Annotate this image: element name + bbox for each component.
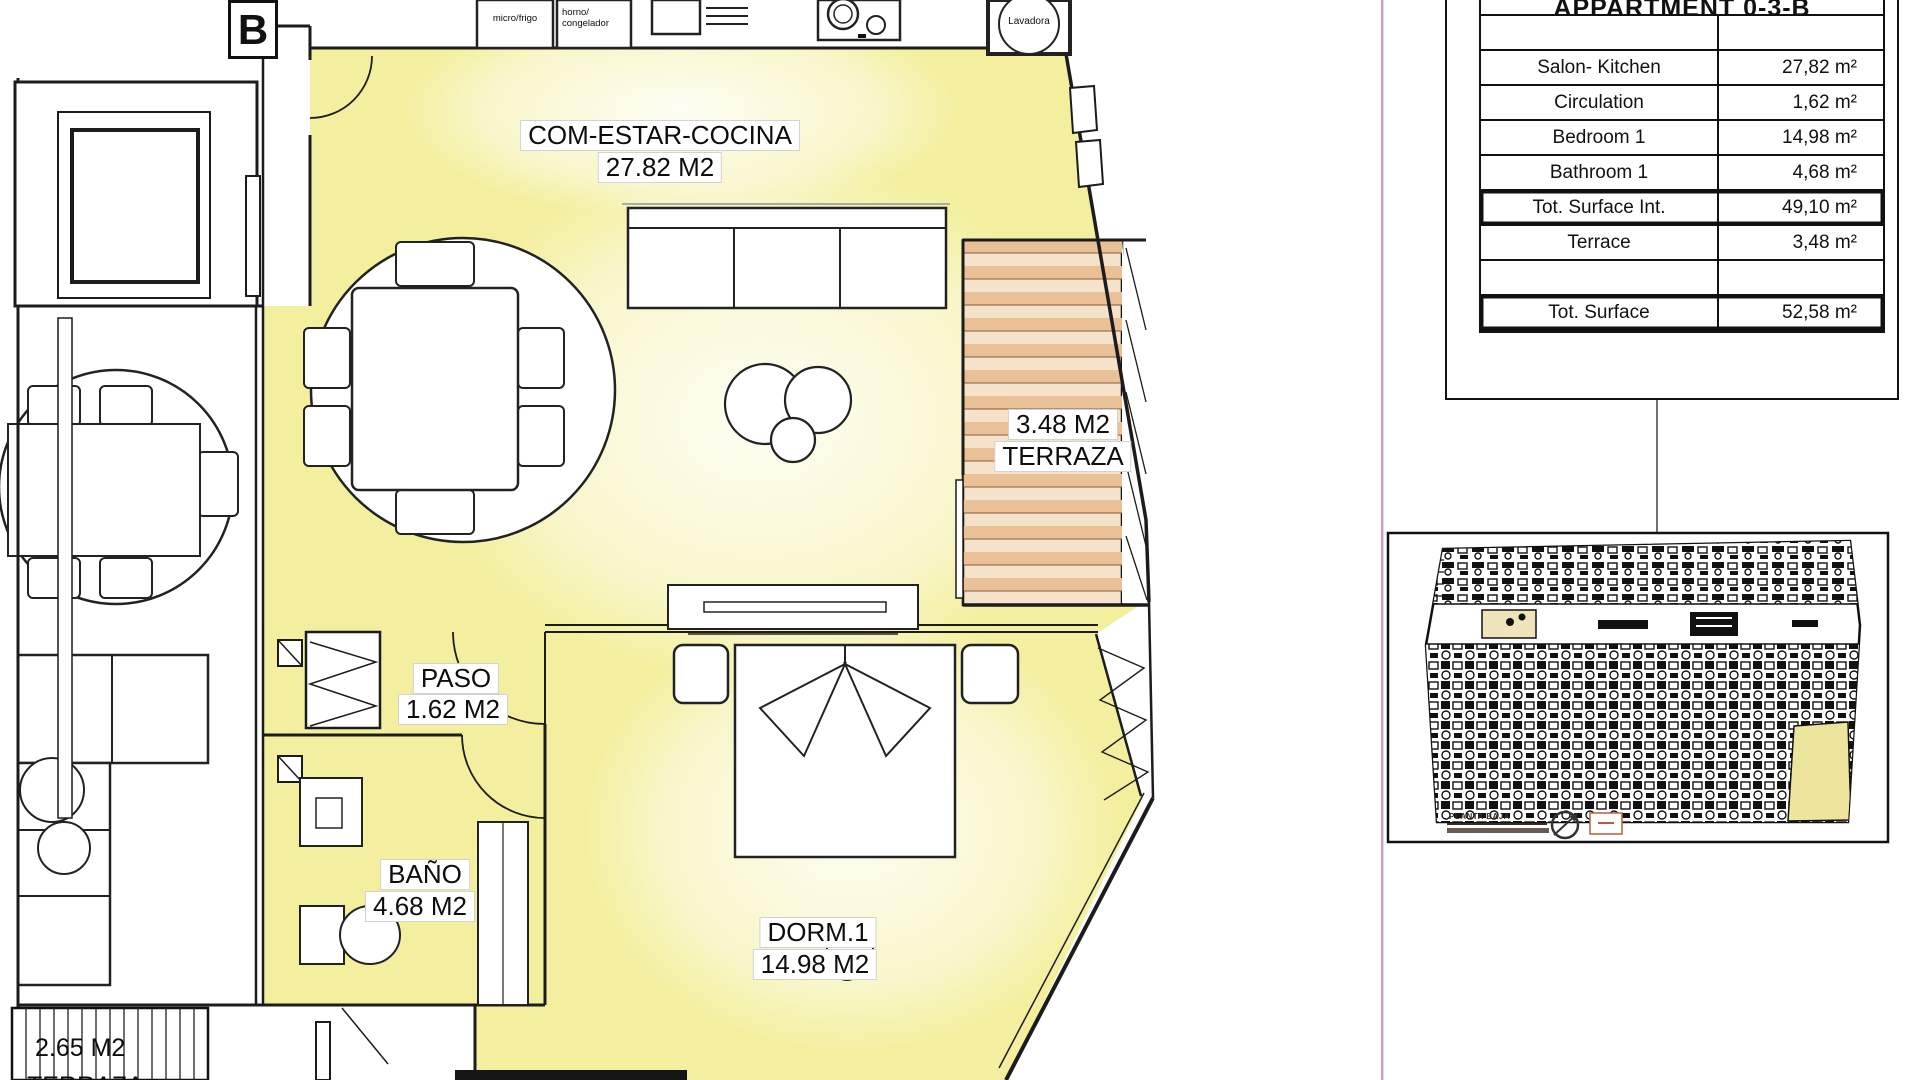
appliance-label-micro-fridge: micro/frigo	[493, 14, 537, 24]
toilet	[300, 906, 344, 964]
table-row-total: Tot. Surface 52,58 m²	[1481, 296, 1883, 331]
table-row-spacer	[1481, 16, 1883, 51]
table-row: Salon- Kitchen 27,82 m²	[1481, 51, 1883, 86]
table-row-empty	[1481, 261, 1883, 296]
floorplan-sheet: B micro/frigo horno/ congelador Lavadora…	[0, 0, 1920, 1080]
nightstand	[962, 645, 1018, 703]
surface-table-box: APPARTMENT 0-3-B Salon- Kitchen 27,82 m²…	[1445, 0, 1899, 400]
room-label-terrace-name: TERRAZA	[995, 442, 1130, 471]
key-plan-caption: PLANTA BAJA	[1449, 812, 1510, 821]
table-row: Bathroom 1 4,68 m²	[1481, 156, 1883, 191]
room-label-living-name: COM-ESTAR-COCINA	[521, 121, 799, 150]
table-row: Bedroom 1 14,98 m²	[1481, 121, 1883, 156]
nightstand	[674, 645, 728, 703]
pink-guide-line	[1381, 0, 1383, 1080]
room-label-dorm-area: 14.98 M2	[754, 950, 876, 979]
fridge-microwave	[477, 0, 553, 48]
room-label-bano-name: BAÑO	[381, 860, 469, 889]
key-plan	[1388, 533, 1888, 842]
room-label-living-area: 27.82 M2	[599, 153, 721, 182]
room-label-paso-area: 1.62 M2	[399, 695, 507, 724]
appliance-label-oven-1: horno/	[562, 8, 589, 18]
neighbor-furniture	[0, 370, 238, 985]
unit-letter-badge: B	[228, 0, 278, 59]
key-plan-caption-subline	[1447, 828, 1549, 833]
table-row: Terrace 3,48 m²	[1481, 226, 1883, 261]
apartment-title: APPARTMENT 0-3-B	[1481, 0, 1883, 16]
sink	[652, 0, 700, 34]
room-label-terrace-area: 3.48 M2	[1009, 410, 1117, 439]
neighbor-terrace-name: TERRAZA	[20, 1072, 151, 1080]
surface-table: APPARTMENT 0-3-B Salon- Kitchen 27,82 m²…	[1479, 0, 1885, 333]
neighbor-terrace-area: 2.65 M2	[28, 1034, 132, 1062]
bed	[735, 645, 955, 857]
wall-cut-band	[455, 1070, 687, 1080]
room-label-dorm-name: DORM.1	[760, 918, 875, 947]
room-label-paso-name: PASO	[414, 664, 498, 693]
appliance-label-washer: Lavadora	[1008, 17, 1050, 28]
appliance-label-oven-2: congelador	[562, 19, 609, 29]
sofa	[628, 208, 946, 308]
key-plan-caption-rule	[1447, 823, 1547, 825]
dining-table	[352, 288, 518, 490]
room-label-bano-area: 4.68 M2	[366, 892, 474, 921]
table-row: Circulation 1,62 m²	[1481, 86, 1883, 121]
table-row-total-int: Tot. Surface Int. 49,10 m²	[1481, 191, 1883, 226]
surface-table-title-row: APPARTMENT 0-3-B	[1481, 0, 1883, 16]
